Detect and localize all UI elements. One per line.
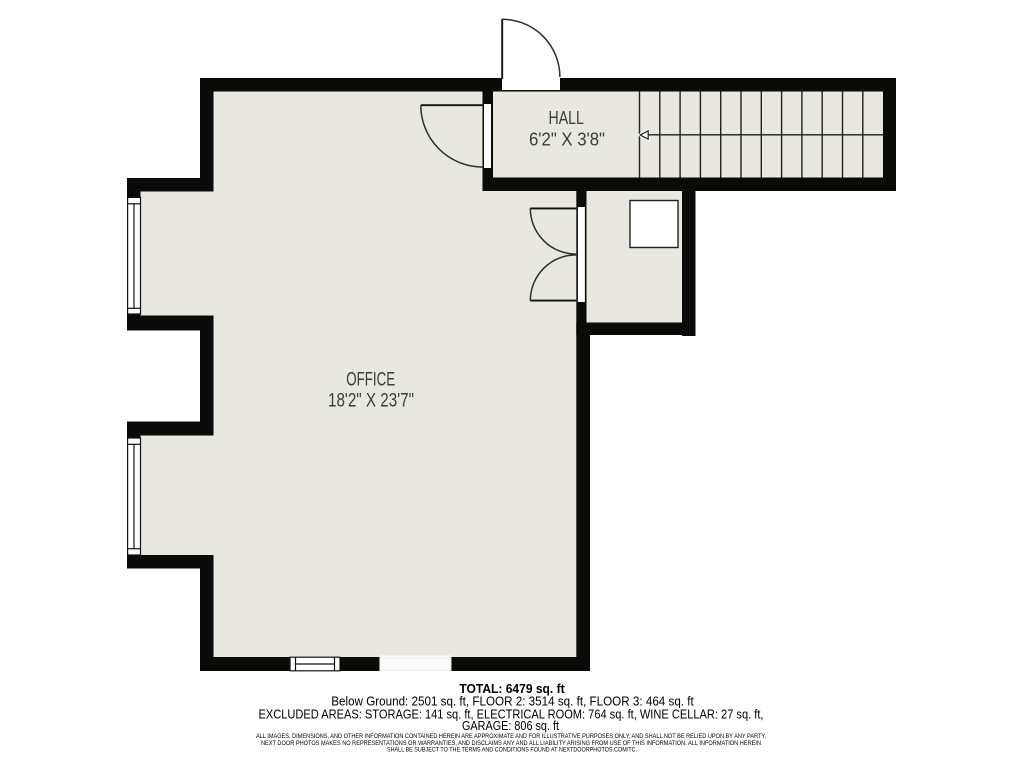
svg-text:ALL IMAGES, DIMENSIONS, AND OT: ALL IMAGES, DIMENSIONS, AND OTHER INFORM… (256, 733, 766, 740)
svg-text:HALL: HALL (549, 108, 584, 128)
svg-text:SHALL BE SUBJECT TO THE TERMS: SHALL BE SUBJECT TO THE TERMS AND CONDIT… (387, 747, 637, 754)
svg-text:GARAGE: 806 sq. ft: GARAGE: 806 sq. ft (462, 719, 559, 733)
svg-text:18'2" X 23'7": 18'2" X 23'7" (328, 390, 414, 411)
svg-text:OFFICE: OFFICE (346, 369, 395, 390)
svg-text:6'2" X 3'8": 6'2" X 3'8" (529, 129, 605, 149)
